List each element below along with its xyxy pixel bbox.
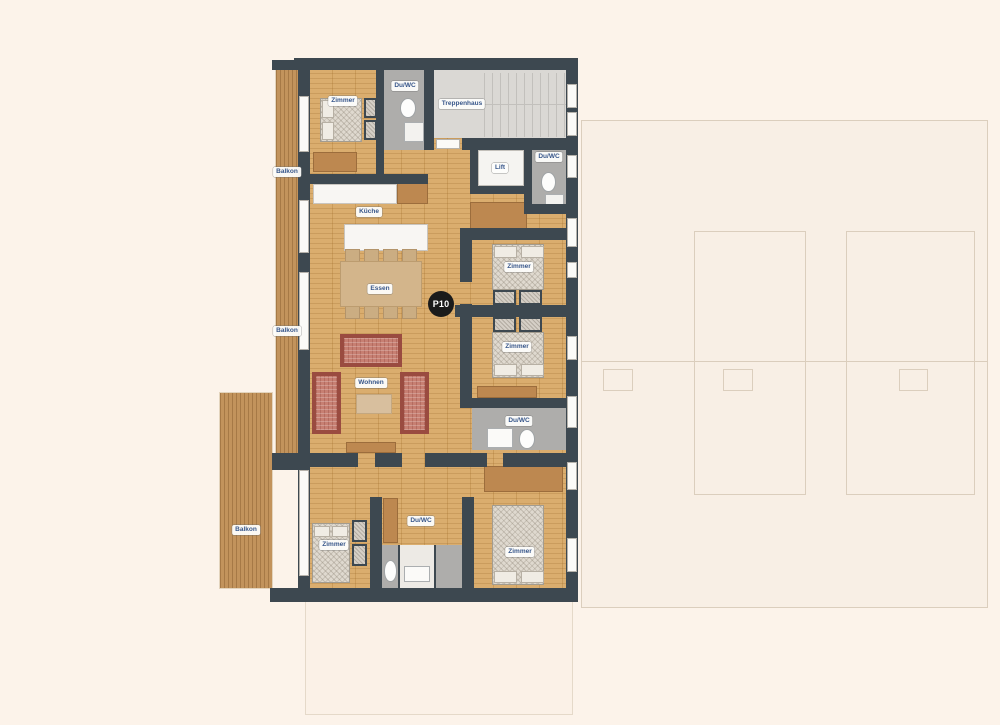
balcony-strip-left — [276, 64, 300, 455]
wardrobe — [352, 544, 367, 566]
wardrobe — [383, 498, 398, 543]
pillow — [494, 246, 517, 258]
room-label-wohnen: Wohnen — [355, 378, 387, 388]
toilet — [400, 98, 416, 118]
sofa — [340, 334, 402, 367]
pillow — [521, 571, 544, 583]
wall-segment — [462, 497, 474, 588]
wardrobe — [519, 317, 542, 332]
room-label-lift: Lift — [492, 163, 508, 173]
kitchen-counter — [313, 184, 397, 204]
wall-segment — [270, 588, 578, 602]
pillow — [494, 571, 517, 583]
room-label-du-wc: Du/WC — [391, 81, 418, 91]
wall-segment — [375, 453, 402, 467]
balcony-lower-left — [220, 393, 272, 588]
toilet — [541, 172, 556, 192]
toilet — [384, 560, 397, 582]
room-label-balkon: Balkon — [273, 167, 301, 177]
window — [299, 272, 309, 350]
wall-segment — [460, 240, 472, 282]
wall-segment — [460, 228, 566, 240]
wall-segment — [294, 58, 578, 70]
wall-segment — [298, 174, 428, 184]
stair-treads — [484, 73, 566, 137]
floor-wet-cell-3 — [436, 545, 462, 588]
wall-segment — [434, 545, 436, 588]
window — [299, 470, 309, 576]
outline-lightwell-2 — [846, 231, 975, 495]
sink — [404, 566, 430, 582]
wall-segment — [425, 453, 487, 467]
pillow — [332, 526, 348, 537]
wardrobe — [352, 520, 367, 542]
wall-segment — [460, 398, 566, 408]
stair-landing-line — [484, 104, 566, 105]
wall-segment — [460, 304, 472, 398]
kitchen-cabinet — [397, 182, 428, 204]
room-label-balkon: Balkon — [273, 326, 301, 336]
outline-shaft-3 — [899, 369, 928, 391]
wardrobe-row — [477, 386, 537, 398]
outline-shaft-2 — [723, 369, 753, 391]
room-label-balkon: Balkon — [232, 525, 260, 535]
room-label-zimmer: Zimmer — [504, 262, 533, 272]
pillow — [322, 122, 334, 140]
outline-below-plan — [305, 597, 573, 715]
wall-segment — [524, 204, 566, 214]
sink — [487, 428, 513, 448]
pillow — [494, 364, 517, 376]
window — [299, 200, 309, 253]
window — [299, 96, 309, 152]
room-label-zimmer: Zimmer — [319, 540, 348, 550]
wall-segment — [370, 497, 382, 588]
room-label-treppenhaus: Treppenhaus — [439, 99, 485, 109]
sideboard — [346, 442, 396, 453]
window — [567, 218, 577, 247]
sideboard — [313, 152, 357, 172]
room-label-zimmer: Zimmer — [505, 547, 534, 557]
wall-segment — [424, 58, 434, 150]
window — [567, 396, 577, 428]
wardrobe — [519, 290, 542, 305]
chair — [364, 306, 379, 319]
window — [567, 84, 577, 108]
sofa — [312, 372, 341, 434]
wall-segment — [455, 305, 566, 317]
coffee-table — [356, 394, 392, 414]
pillow — [521, 364, 544, 376]
window — [567, 155, 577, 178]
room-label-essen: Essen — [367, 284, 392, 294]
window — [567, 462, 577, 490]
room-label-zimmer: Zimmer — [328, 96, 357, 106]
outline-lightwell-1 — [694, 231, 806, 495]
pillow — [314, 526, 330, 537]
pillow — [521, 246, 544, 258]
room-label-kueche: Küche — [356, 207, 382, 217]
wall-segment — [462, 138, 578, 150]
chair — [383, 306, 398, 319]
wall-segment — [272, 453, 358, 467]
chair — [402, 306, 417, 319]
room-label-du-wc: Du/WC — [407, 516, 434, 526]
window — [567, 262, 577, 278]
wall-segment — [398, 545, 400, 588]
wardrobe — [493, 290, 516, 305]
floor-plan: Zimmer Du/WC Treppenhaus Lift Du/WC Küch… — [0, 0, 1000, 725]
wardrobe — [484, 466, 563, 492]
window — [567, 112, 577, 136]
room-label-du-wc: Du/WC — [505, 416, 532, 426]
outline-shaft-1 — [603, 369, 633, 391]
room-label-zimmer: Zimmer — [502, 342, 531, 352]
wall-segment — [376, 70, 384, 180]
window — [567, 336, 577, 360]
wardrobe — [493, 317, 516, 332]
kitchen-island — [344, 224, 428, 251]
window — [567, 538, 577, 572]
toilet — [519, 429, 535, 449]
shower — [404, 122, 424, 142]
chair — [345, 306, 360, 319]
wall-segment — [470, 186, 532, 194]
entrance-door — [436, 139, 460, 149]
room-label-du-wc: Du/WC — [535, 152, 562, 162]
sofa — [400, 372, 429, 434]
unit-badge: P10 — [428, 291, 454, 317]
